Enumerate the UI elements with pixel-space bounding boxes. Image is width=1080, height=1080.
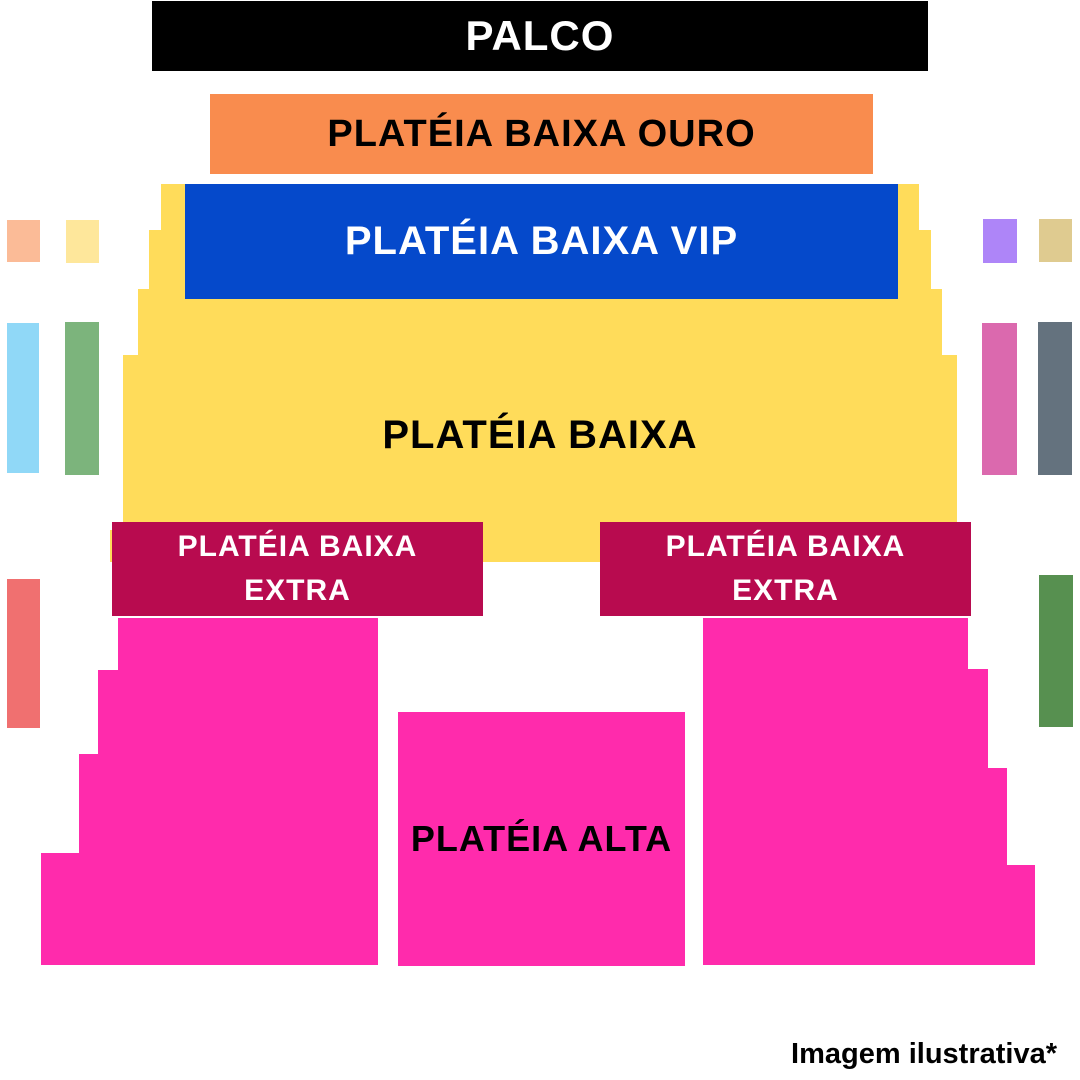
- side-block-left-peach[interactable]: [7, 220, 40, 262]
- section-plateia-alta-label: PLATÉIA ALTA: [411, 818, 672, 860]
- side-block-right-purple[interactable]: [983, 219, 1017, 263]
- side-block-left-green[interactable]: [65, 322, 99, 475]
- extra-left-label-line2: EXTRA: [244, 569, 351, 613]
- section-plateia-baixa-ouro[interactable]: PLATÉIA BAIXA OURO: [210, 94, 873, 174]
- section-plateia-alta-left-shape[interactable]: [41, 618, 378, 965]
- side-block-right-rose[interactable]: [982, 323, 1017, 475]
- section-palco-label: PALCO: [466, 12, 615, 60]
- side-block-right-tan[interactable]: [1039, 219, 1072, 262]
- section-plateia-alta-right-shape[interactable]: [703, 618, 1035, 965]
- side-block-left-salmon[interactable]: [7, 579, 40, 728]
- section-plateia-baixa-extra-left[interactable]: PLATÉIA BAIXA EXTRA: [112, 522, 483, 616]
- extra-right-label-line2: EXTRA: [732, 569, 839, 613]
- side-block-right-green[interactable]: [1039, 575, 1073, 727]
- side-block-left-sky[interactable]: [7, 323, 39, 473]
- section-plateia-baixa-label: PLATÉIA BAIXA: [382, 413, 697, 458]
- section-plateia-baixa-label-wrap: PLATÉIA BAIXA: [0, 408, 1080, 462]
- side-block-right-gray[interactable]: [1038, 322, 1072, 475]
- illustrative-caption: Imagem ilustrativa*: [0, 1038, 1057, 1071]
- section-plateia-baixa-extra-right[interactable]: PLATÉIA BAIXA EXTRA: [600, 522, 971, 616]
- seating-map: PALCO PLATÉIA BAIXA OURO PLATÉIA BAIXA V…: [0, 0, 1080, 1080]
- section-plateia-alta-center[interactable]: PLATÉIA ALTA: [398, 712, 685, 966]
- section-plateia-baixa-ouro-label: PLATÉIA BAIXA OURO: [327, 113, 755, 156]
- section-palco[interactable]: PALCO: [152, 1, 928, 71]
- section-plateia-baixa-vip-label: PLATÉIA BAIXA VIP: [345, 219, 738, 264]
- extra-left-label-line1: PLATÉIA BAIXA: [178, 525, 418, 569]
- side-block-left-cream[interactable]: [66, 220, 99, 263]
- extra-right-label-line1: PLATÉIA BAIXA: [666, 525, 906, 569]
- section-plateia-baixa-vip[interactable]: PLATÉIA BAIXA VIP: [185, 184, 898, 299]
